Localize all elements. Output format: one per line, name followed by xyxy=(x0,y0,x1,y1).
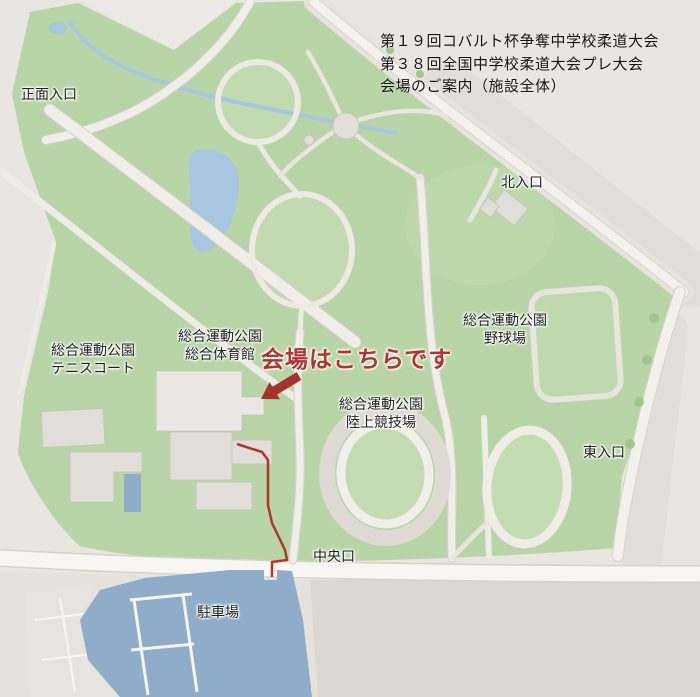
label-north-entrance: 北入口 xyxy=(501,174,543,192)
pool xyxy=(124,474,141,512)
label-baseball-field: 総合運動公園 野球場 xyxy=(463,312,547,348)
event-title-line2: 第３８回全国中学校柔道大会プレ大会 xyxy=(380,53,659,76)
event-title: 第１９回コバルト杯争奪中学校柔道大会 第３８回全国中学校柔道大会プレ大会 会場の… xyxy=(380,30,659,98)
label-tennis-court: 総合運動公園 テニスコート xyxy=(51,342,135,378)
venue-callout: 会場はこちらです xyxy=(261,340,452,374)
label-gymnasium: 総合運動公園 総合体育館 xyxy=(178,328,262,364)
label-central-entrance: 中央口 xyxy=(313,548,355,566)
park-guide-map: 第１９回コバルト杯争奪中学校柔道大会 第３８回全国中学校柔道大会プレ大会 会場の… xyxy=(0,0,700,697)
label-main-entrance: 正面入口 xyxy=(21,86,77,104)
label-east-entrance: 東入口 xyxy=(583,444,625,462)
event-title-line1: 第１９回コバルト杯争奪中学校柔道大会 xyxy=(380,30,659,53)
stream-pool xyxy=(49,22,67,34)
south-ground-right xyxy=(310,578,700,697)
event-title-line3: 会場のご案内（施設全体） xyxy=(380,75,659,98)
label-athletics-stadium: 総合運動公園 陸上競技場 xyxy=(339,396,423,432)
label-parking: 駐車場 xyxy=(197,604,239,622)
